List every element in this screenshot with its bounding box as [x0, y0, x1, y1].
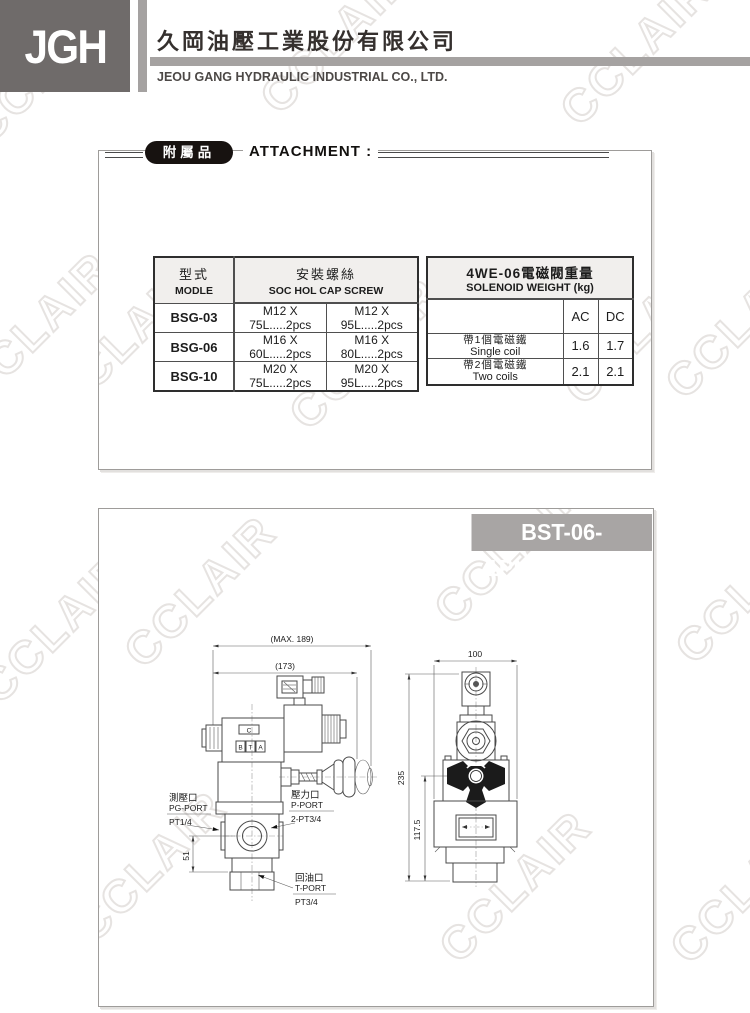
catalog-page: CCLAIR CCLAIR CCLAIR CCLAIR CCLAIR CCLAI…: [0, 0, 750, 1013]
table-row: BSG-03 M12 X 75L.....2pcs M12 X 95L.....…: [154, 303, 418, 333]
model-cell: BSG-10: [154, 362, 234, 392]
col-screw-en: SOC HOL CAP SCREW: [269, 285, 384, 297]
dim-117-label: 117.5: [412, 819, 422, 840]
coil-label-cell: 帶2個電磁鐵 Two coils: [427, 359, 563, 385]
company-name-en: JEOU GANG HYDRAULIC INDUSTRIAL CO., LTD.: [157, 70, 448, 84]
screw-cell: M16 X 60L.....2pcs: [234, 333, 326, 362]
header-bar: [150, 57, 750, 66]
coil-label-zh: 帶2個電磁鐵: [430, 359, 561, 371]
valve-mark-c: C: [247, 728, 252, 735]
weight-table-title: 4WE-06電磁閥重量 SOLENOID WEIGHT (kg): [427, 257, 633, 299]
model-number-banner: BST-06-1PN/1NP.....DC: [472, 514, 653, 551]
dim-173-label: (173): [275, 661, 295, 671]
coil-label-en: Two coils: [430, 371, 561, 384]
logo-text: JGH: [24, 19, 106, 74]
t-port-size: PT3/4: [295, 897, 318, 907]
p-port-size: 2-PT3/4: [291, 814, 322, 824]
company-logo: JGH: [0, 0, 130, 92]
watermark: CCLAIR: [654, 235, 750, 409]
table-row: 帶1個電磁鐵 Single coil 1.6 1.7: [427, 333, 633, 359]
header-stripe: [138, 0, 147, 92]
heading-rule-right: [353, 152, 609, 158]
model-cell: BSG-06: [154, 333, 234, 362]
dim-51-label: 51: [181, 851, 191, 861]
table-row: AC DC: [427, 299, 633, 333]
dim-235-label: 235: [396, 771, 406, 785]
col-screw-zh: 安裝螺絲: [296, 267, 356, 282]
watermark: CCLAIR: [664, 500, 750, 674]
front-view-drawing: 100 235 117.5: [396, 649, 517, 887]
screw-table-header-model: 型式 MODLE: [154, 257, 234, 303]
attachment-title: ATTACHMENT :: [243, 143, 378, 160]
empty-cell: [427, 299, 563, 333]
screw-cell: M12 X 75L.....2pcs: [234, 303, 326, 333]
screw-cell: M20 X 95L.....2pcs: [326, 362, 418, 392]
model-cell: BSG-03: [154, 303, 234, 333]
screw-cell: M16 X 80L.....2pcs: [326, 333, 418, 362]
weight-value: 2.1: [563, 359, 598, 385]
screw-cell: M20 X 75L.....2pcs: [234, 362, 326, 392]
heading-rule-left: [105, 152, 143, 158]
valve-mark-b: B: [238, 745, 242, 752]
weight-title-en: SOLENOID WEIGHT (kg): [430, 282, 630, 294]
coil-label-cell: 帶1個電磁鐵 Single coil: [427, 333, 563, 359]
table-row: 帶2個電磁鐵 Two coils 2.1 2.1: [427, 359, 633, 385]
screw-table-header-screw: 安裝螺絲 SOC HOL CAP SCREW: [234, 257, 418, 303]
dim-max-label: (MAX. 189): [271, 634, 314, 644]
t-port-label-en: T-PORT: [295, 883, 326, 893]
weight-value: 2.1: [598, 359, 633, 385]
side-view-drawing: (MAX. 189) (173): [167, 634, 379, 907]
solenoid-weight-table: 4WE-06電磁閥重量 SOLENOID WEIGHT (kg) AC DC 帶…: [426, 256, 634, 386]
company-name-zh: 久岡油壓工業股份有限公司: [157, 24, 457, 56]
watermark: CCLAIR: [549, 0, 723, 136]
valve-mark-t: T: [249, 745, 253, 752]
dim-100-label: 100: [468, 649, 482, 659]
attachment-badge: 附屬品: [145, 141, 233, 164]
screw-cell: M12 X 95L.....2pcs: [326, 303, 418, 333]
weight-title-zh: 4WE-06電磁閥重量: [430, 262, 630, 282]
table-row: BSG-06 M16 X 60L.....2pcs M16 X 80L.....…: [154, 333, 418, 362]
p-port-label-en: P-PORT: [291, 800, 323, 810]
pg-port-label-en: PG-PORT: [169, 803, 208, 813]
watermark: CCLAIR: [659, 800, 750, 974]
col-dc: DC: [598, 299, 633, 333]
mounting-screw-table: 型式 MODLE 安裝螺絲 SOC HOL CAP SCREW BSG-03 M…: [153, 256, 419, 392]
col-model-zh: 型式: [179, 267, 209, 282]
col-ac: AC: [563, 299, 598, 333]
table-row: BSG-10 M20 X 75L.....2pcs M20 X 95L.....…: [154, 362, 418, 392]
weight-value: 1.7: [598, 333, 633, 359]
col-model-en: MODLE: [175, 285, 213, 297]
weight-value: 1.6: [563, 333, 598, 359]
coil-label-zh: 帶1個電磁鐵: [430, 334, 561, 346]
attachment-panel-body: CCLAIR CCLAIR CCLAIR 型式 MODLE 安裝螺絲 SOC H…: [99, 151, 651, 469]
coil-label-en: Single coil: [430, 346, 561, 359]
drawing-panel: CCLAIR CCLAIR CCLAIR CCLAIR CCLAIR: [98, 508, 654, 1007]
attachment-panel: CCLAIR CCLAIR CCLAIR 型式 MODLE 安裝螺絲 SOC H…: [98, 150, 652, 470]
valve-mark-a: A: [258, 745, 263, 752]
